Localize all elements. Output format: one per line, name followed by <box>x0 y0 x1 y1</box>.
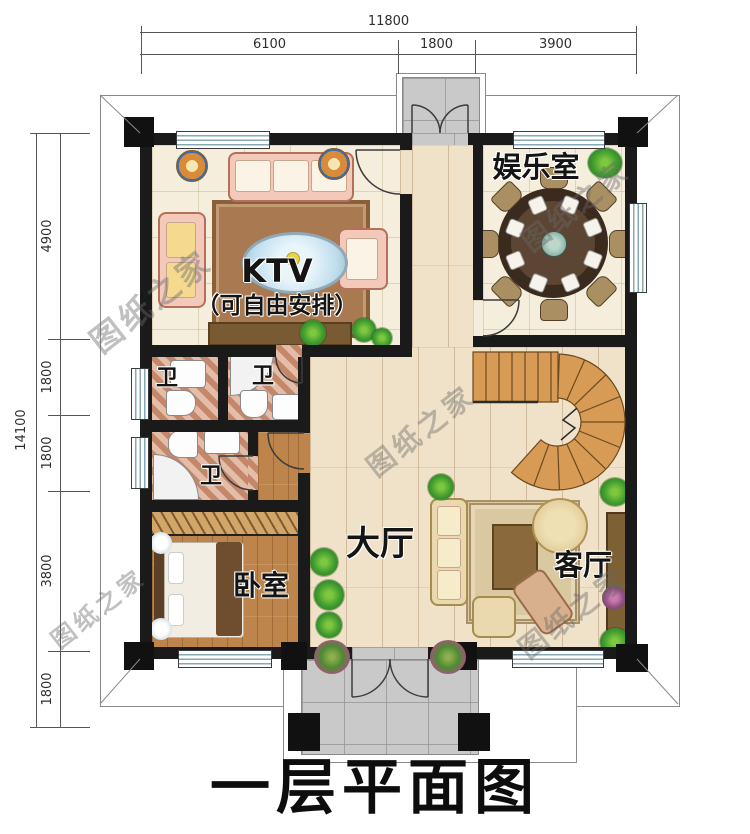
top-porch-floor <box>402 77 480 135</box>
living-armchair <box>472 596 516 638</box>
dim-top-total: 11800 <box>140 14 637 29</box>
bedside-lamp-2 <box>150 618 172 640</box>
ktv-door-opening <box>400 150 412 194</box>
bedside-lamp-1 <box>150 532 172 554</box>
dim-top-seg-2: 1800 <box>398 37 475 52</box>
room-label-bath3: 卫 <box>196 458 226 490</box>
dim-left-seg-2: 1800 <box>40 355 56 399</box>
dim-left-tick-1 <box>30 133 90 134</box>
dim-left-tick-2 <box>48 339 90 340</box>
hall-plant-1 <box>310 548 338 576</box>
dim-left-tick-3 <box>48 415 90 416</box>
entry-corridor-floor <box>412 145 473 347</box>
window-entertainment-right <box>629 203 647 293</box>
hall-entry-plant <box>316 612 342 638</box>
bath3-door-opening <box>248 456 258 490</box>
wall-ent-bottom <box>473 335 637 347</box>
porch-bush-right <box>430 640 466 674</box>
window-bedroom-bottom <box>178 650 272 668</box>
pilaster-bottom-left <box>124 642 154 670</box>
porch-column-right <box>458 713 490 751</box>
pilaster-top-left <box>124 117 154 147</box>
room-label-bedroom: 卧室 <box>224 564 298 604</box>
plan-title: 一层平面图 <box>0 750 750 826</box>
hall-plant-2 <box>314 580 344 610</box>
bath3-toilet <box>168 430 198 458</box>
ktv-round-cushion-left <box>176 150 208 182</box>
ent-door-opening <box>473 300 483 336</box>
window-ktv-top <box>176 131 270 149</box>
dim-top-line-1 <box>140 32 637 33</box>
bed-pillow-1 <box>168 552 184 584</box>
bottom-entry-opening <box>352 647 428 659</box>
room-label-hall: 大厅 <box>338 516 422 565</box>
pilaster-bottom-right <box>616 644 648 672</box>
dim-left-seg-1: 4900 <box>40 214 56 258</box>
wall-bath-divider <box>218 357 228 420</box>
bath2-door-opening <box>276 345 302 357</box>
window-bath1-left <box>131 368 149 420</box>
ktv-console <box>208 322 352 346</box>
dim-left-seg-3: 1800 <box>40 431 56 475</box>
dim-left-seg-5: 1800 <box>40 667 56 711</box>
dim-left-tick-6 <box>30 727 90 728</box>
bed-pillow-2 <box>168 594 184 626</box>
corridor-door-opening <box>298 433 310 473</box>
living-sofa <box>430 498 468 606</box>
dim-left-tick-4 <box>48 491 90 492</box>
bath3-sink <box>204 430 240 454</box>
dim-left-total: 14100 <box>13 408 31 452</box>
top-entry-opening <box>412 133 468 145</box>
porch-bush-left <box>314 640 350 674</box>
porch-column-left <box>288 713 320 751</box>
small-corridor-floor <box>258 432 298 500</box>
wall-bedroom-top <box>140 500 310 512</box>
dim-left-tick-5 <box>48 651 90 652</box>
dim-left-seg-4: 3800 <box>40 549 56 593</box>
floor-plan-canvas: KTV （可自由安排） 娱乐室 卫 卫 卫 卧室 大厅 客厅 图纸之家 图纸之家… <box>0 0 750 834</box>
dim-left-line-2 <box>60 133 61 727</box>
living-plant-top <box>428 474 454 500</box>
room-label-bath1: 卫 <box>152 360 182 392</box>
room-label-ktv: KTV <box>207 252 347 290</box>
ktv-plant-1 <box>300 320 326 346</box>
wardrobe <box>152 512 298 536</box>
dim-top-seg-1: 6100 <box>141 37 398 52</box>
window-bath3-left <box>131 437 149 489</box>
wall-bath-mid <box>152 420 308 432</box>
dim-left-line-1 <box>36 133 37 727</box>
bath2-toilet <box>240 390 268 418</box>
dim-top-seg-3: 3900 <box>475 37 636 52</box>
bath1-toilet <box>166 390 196 416</box>
ktv-round-cushion-right <box>318 148 350 180</box>
pilaster-top-right <box>618 117 648 147</box>
dim-top-line-2 <box>140 54 637 55</box>
pilaster-porch-left <box>281 642 307 670</box>
room-label-bath2: 卫 <box>248 358 278 390</box>
dim-top-tick-4 <box>636 26 637 74</box>
